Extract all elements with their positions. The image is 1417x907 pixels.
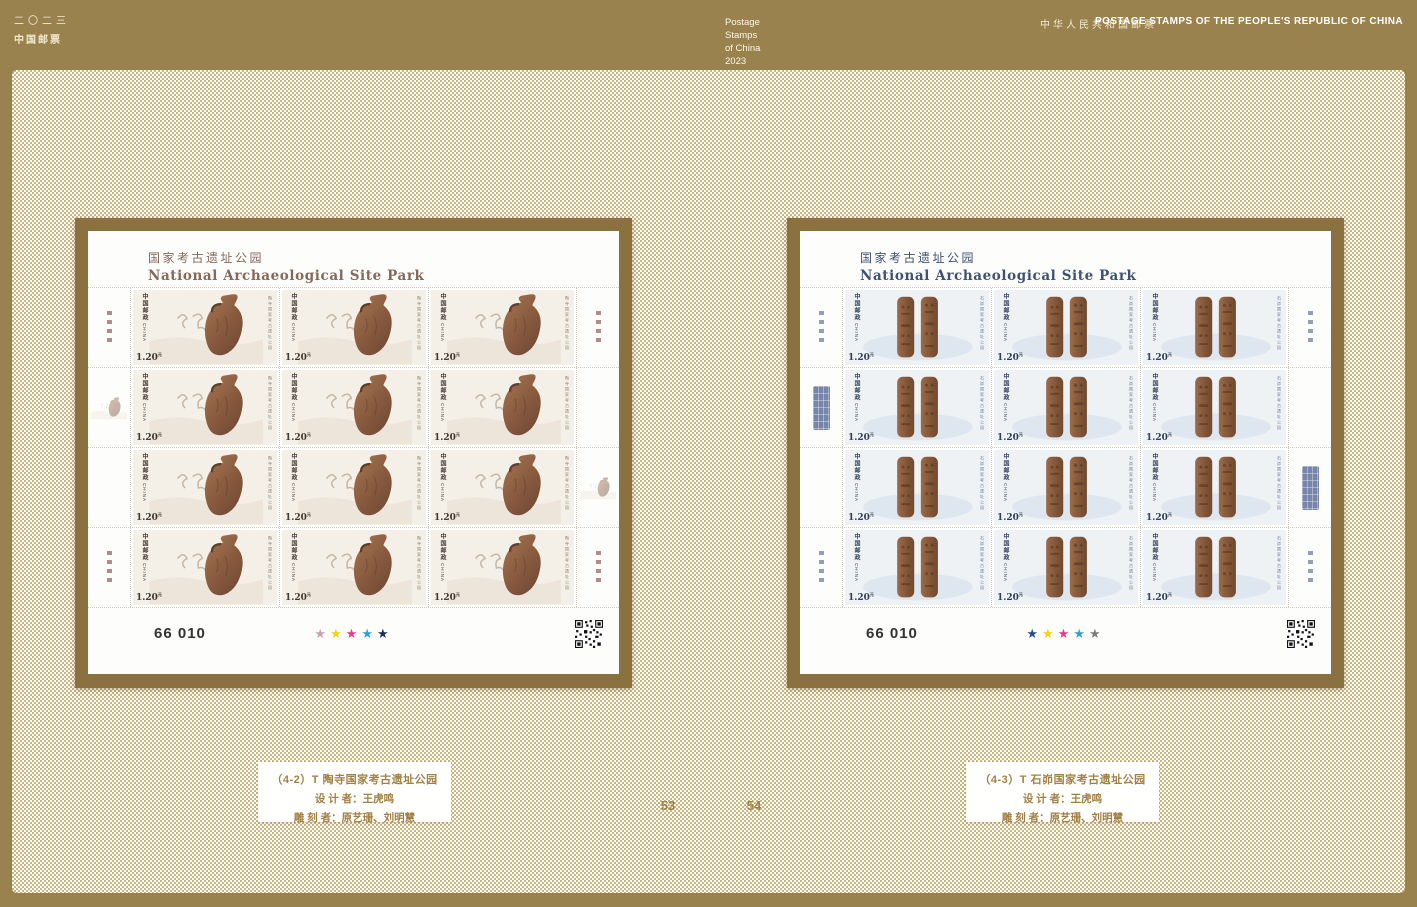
stamp-denomination: 1.20元 xyxy=(136,512,162,523)
sheet-title-cn: 国家考古遗址公园 xyxy=(148,249,619,266)
stamp-design: 中国邮政CHINA陶寺国家考古遗址公园1.20元 xyxy=(431,450,574,525)
sheet-title-en: National Archaeological Site Park xyxy=(860,268,1331,284)
stamp-artwork-icon xyxy=(859,372,977,444)
stamp-artwork-icon xyxy=(1008,372,1126,444)
stamp-row: 中国邮政CHINA陶寺国家考古遗址公园1.20元中国邮政CHINA陶寺国家考古遗… xyxy=(88,447,619,527)
stamp-row: 中国邮政CHINA陶寺国家考古遗址公园1.20元中国邮政CHINA陶寺国家考古遗… xyxy=(88,367,619,447)
stamp-post-label: 中国邮政CHINA xyxy=(1146,453,1162,502)
stamp-denomination: 1.20元 xyxy=(1146,592,1172,603)
caption-box-left: （4-2）T 陶寺国家考古遗址公园 设 计 者：王虎鸣 雕 刻 者：原艺珊、刘明… xyxy=(258,762,451,822)
stamp-artwork-icon xyxy=(296,452,414,524)
registration-star-icon: ★ xyxy=(1058,626,1074,641)
stamp-post-label: 中国邮政CHINA xyxy=(1146,373,1162,422)
stamp: 中国邮政CHINA陶寺国家考古遗址公园1.20元 xyxy=(130,448,279,527)
stamp-design: 中国邮政CHINA陶寺国家考古遗址公园1.20元 xyxy=(133,450,277,525)
stamp: 中国邮政CHINA陶寺国家考古遗址公园1.20元 xyxy=(130,288,279,367)
stamp-side-title: 陶寺国家考古遗址公园 xyxy=(564,456,570,511)
stamp-side-title: 陶寺国家考古遗址公园 xyxy=(564,376,570,431)
registration-star-icon: ★ xyxy=(346,626,362,641)
stamp-post-label: 中国邮政CHINA xyxy=(434,453,450,502)
margin-inscription-icon xyxy=(596,311,601,345)
sheet-title-en: National Archaeological Site Park xyxy=(148,268,619,284)
sheet-margin xyxy=(800,448,842,527)
stamp-denomination: 1.20元 xyxy=(136,432,162,443)
stamp-design: 中国邮政CHINA石峁国家考古遗址公园1.20元 xyxy=(994,450,1138,525)
stamp-artwork-icon xyxy=(859,532,977,604)
registration-star-icon: ★ xyxy=(1073,626,1089,641)
stamp-design: 中国邮政CHINA石峁国家考古遗址公园1.20元 xyxy=(845,370,989,445)
stamp-post-label: 中国邮政CHINA xyxy=(848,373,864,422)
stamp-denomination: 1.20元 xyxy=(136,352,162,363)
stamp: 中国邮政CHINA陶寺国家考古遗址公园1.20元 xyxy=(428,448,577,527)
margin-seal-icon xyxy=(1302,466,1319,510)
caption-box-right: （4-3）T 石峁国家考古遗址公园 设 计 者：王虎鸣 雕 刻 者：原艺珊、刘明… xyxy=(966,762,1159,822)
stamp-denomination: 1.20元 xyxy=(285,592,311,603)
stamp-design: 中国邮政CHINA石峁国家考古遗址公园1.20元 xyxy=(845,290,989,365)
margin-inscription-icon xyxy=(1308,311,1313,345)
stamp: 中国邮政CHINA石峁国家考古遗址公园1.20元 xyxy=(1140,368,1289,447)
stamp-post-label: 中国邮政CHINA xyxy=(848,453,864,502)
sheet-margin xyxy=(577,528,619,607)
caption-engraver: 雕 刻 者：原艺珊、刘明慧 xyxy=(966,810,1159,825)
stamp: 中国邮政CHINA石峁国家考古遗址公园1.20元 xyxy=(842,368,991,447)
stamp: 中国邮政CHINA石峁国家考古遗址公园1.20元 xyxy=(991,288,1140,367)
header-en-title: POSTAGE STAMPS OF THE PEOPLE'S REPUBLIC … xyxy=(1095,16,1403,27)
stamp-design: 中国邮政CHINA石峁国家考古遗址公园1.20元 xyxy=(994,290,1138,365)
sheet-bottom-strip: 66 010 ★★★★★ xyxy=(88,607,619,673)
stamp-artwork-icon xyxy=(147,452,265,524)
stamp-artwork-icon xyxy=(1008,292,1126,364)
stamp-denomination: 1.20元 xyxy=(997,352,1023,363)
stamp-artwork-icon xyxy=(1157,452,1275,524)
stamp-artwork-icon xyxy=(147,292,265,364)
stamp-row: 中国邮政CHINA石峁国家考古遗址公园1.20元中国邮政CHINA石峁国家考古遗… xyxy=(800,287,1331,367)
stamp-side-title: 陶寺国家考古遗址公园 xyxy=(267,296,273,351)
stamp-design: 中国邮政CHINA陶寺国家考古遗址公园1.20元 xyxy=(282,530,426,605)
stamp-sheet-frame-left: 国家考古遗址公园 National Archaeological Site Pa… xyxy=(75,218,632,688)
stamp-design: 中国邮政CHINA石峁国家考古遗址公园1.20元 xyxy=(994,370,1138,445)
stamp-design: 中国邮政CHINA陶寺国家考古遗址公园1.20元 xyxy=(282,290,426,365)
stamp-artwork-icon xyxy=(1008,532,1126,604)
sheet-margin xyxy=(88,448,130,527)
stamp: 中国邮政CHINA陶寺国家考古遗址公园1.20元 xyxy=(428,288,577,367)
stamp-side-title: 陶寺国家考古遗址公园 xyxy=(416,536,422,591)
stamp-side-title: 石峁国家考古遗址公园 xyxy=(979,456,985,511)
stamp-side-title: 石峁国家考古遗址公园 xyxy=(1276,536,1282,591)
stamp-denomination: 1.20元 xyxy=(1146,352,1172,363)
stamp: 中国邮政CHINA陶寺国家考古遗址公园1.20元 xyxy=(279,528,428,607)
stamp-post-label: 中国邮政CHINA xyxy=(434,293,450,342)
stamp-artwork-icon xyxy=(1008,452,1126,524)
registration-star-icon: ★ xyxy=(361,626,377,641)
stamp: 中国邮政CHINA陶寺国家考古遗址公园1.20元 xyxy=(428,528,577,607)
stamp-artwork-icon xyxy=(1157,292,1275,364)
stamp-side-title: 石峁国家考古遗址公园 xyxy=(1128,536,1134,591)
caption-title: （4-2）T 陶寺国家考古遗址公园 xyxy=(258,771,451,787)
stamp-post-label: 中国邮政CHINA xyxy=(434,373,450,422)
stamp-side-title: 陶寺国家考古遗址公园 xyxy=(267,456,273,511)
stamp: 中国邮政CHINA陶寺国家考古遗址公园1.20元 xyxy=(130,528,279,607)
stamp-design: 中国邮政CHINA石峁国家考古遗址公园1.20元 xyxy=(845,450,989,525)
margin-pottery-sketch-icon xyxy=(580,462,616,514)
stamp-post-label: 中国邮政CHINA xyxy=(848,533,864,582)
stamp-side-title: 陶寺国家考古遗址公园 xyxy=(267,376,273,431)
page-number-left: 53 xyxy=(655,798,681,813)
stamp-denomination: 1.20元 xyxy=(997,512,1023,523)
stamp: 中国邮政CHINA石峁国家考古遗址公园1.20元 xyxy=(1140,288,1289,367)
stamp-denomination: 1.20元 xyxy=(136,592,162,603)
stamp: 中国邮政CHINA石峁国家考古遗址公园1.20元 xyxy=(842,288,991,367)
stamp-post-label: 中国邮政CHINA xyxy=(285,533,301,582)
stamp-denomination: 1.20元 xyxy=(848,352,874,363)
header-center-line: Stamps xyxy=(725,29,760,42)
sheet-margin xyxy=(577,288,619,367)
stamp-post-label: 中国邮政CHINA xyxy=(136,293,152,342)
stamp-side-title: 石峁国家考古遗址公园 xyxy=(1276,456,1282,511)
stamp-design: 中国邮政CHINA石峁国家考古遗址公园1.20元 xyxy=(994,530,1138,605)
sheet-margin xyxy=(800,288,842,367)
stamp-row: 中国邮政CHINA陶寺国家考古遗址公园1.20元中国邮政CHINA陶寺国家考古遗… xyxy=(88,527,619,607)
album-page: 二〇二三 中国邮票 Postage Stamps of China 2023 中… xyxy=(0,0,1417,907)
stamp-denomination: 1.20元 xyxy=(434,352,460,363)
stamp-artwork-icon xyxy=(445,292,563,364)
sheet-margin xyxy=(577,368,619,447)
sheet-title-cn: 国家考古遗址公园 xyxy=(860,249,1331,266)
stamp-design: 中国邮政CHINA陶寺国家考古遗址公园1.20元 xyxy=(133,530,277,605)
stamp: 中国邮政CHINA石峁国家考古遗址公园1.20元 xyxy=(991,528,1140,607)
sheet-margin xyxy=(800,528,842,607)
stamp-denomination: 1.20元 xyxy=(848,432,874,443)
stamp: 中国邮政CHINA石峁国家考古遗址公园1.20元 xyxy=(1140,528,1289,607)
stamp-side-title: 陶寺国家考古遗址公园 xyxy=(564,536,570,591)
stamp: 中国邮政CHINA石峁国家考古遗址公园1.20元 xyxy=(842,448,991,527)
stamp-row: 中国邮政CHINA石峁国家考古遗址公园1.20元中国邮政CHINA石峁国家考古遗… xyxy=(800,527,1331,607)
sheet-bottom-strip: 66 010 ★★★★★ xyxy=(800,607,1331,673)
stamp-post-label: 中国邮政CHINA xyxy=(997,453,1013,502)
stamp-denomination: 1.20元 xyxy=(848,592,874,603)
page-number-right: 54 xyxy=(741,798,767,813)
header-center-block: Postage Stamps of China 2023 xyxy=(725,16,760,68)
stamp-post-label: 中国邮政CHINA xyxy=(1146,293,1162,342)
stamp-artwork-icon xyxy=(147,532,265,604)
stamp-denomination: 1.20元 xyxy=(285,512,311,523)
stamp-design: 中国邮政CHINA石峁国家考古遗址公园1.20元 xyxy=(1143,370,1286,445)
registration-star-icon: ★ xyxy=(1089,626,1105,641)
stamp-artwork-icon xyxy=(1157,372,1275,444)
caption-designer: 设 计 者：王虎鸣 xyxy=(966,791,1159,806)
stamp-post-label: 中国邮政CHINA xyxy=(434,533,450,582)
stamp-design: 中国邮政CHINA陶寺国家考古遗址公园1.20元 xyxy=(282,450,426,525)
stamp: 中国邮政CHINA石峁国家考古遗址公园1.20元 xyxy=(991,448,1140,527)
stamp-design: 中国邮政CHINA陶寺国家考古遗址公园1.20元 xyxy=(431,290,574,365)
margin-inscription-icon xyxy=(107,311,112,345)
stamp-denomination: 1.20元 xyxy=(285,432,311,443)
sheet-margin xyxy=(88,368,130,447)
stamp-denomination: 1.20元 xyxy=(997,592,1023,603)
sheet-margin xyxy=(88,528,130,607)
stamp-artwork-icon xyxy=(296,372,414,444)
stamp-design: 中国邮政CHINA陶寺国家考古遗址公园1.20元 xyxy=(282,370,426,445)
stamp-design: 中国邮政CHINA陶寺国家考古遗址公园1.20元 xyxy=(133,290,277,365)
caption-title: （4-3）T 石峁国家考古遗址公园 xyxy=(966,771,1159,787)
stamp-artwork-icon xyxy=(445,452,563,524)
stamp-post-label: 中国邮政CHINA xyxy=(997,373,1013,422)
stamp-denomination: 1.20元 xyxy=(997,432,1023,443)
sheet-margin xyxy=(577,448,619,527)
stamp-post-label: 中国邮政CHINA xyxy=(285,293,301,342)
stamp-artwork-icon xyxy=(859,292,977,364)
sheet-header: 国家考古遗址公园 National Archaeological Site Pa… xyxy=(88,231,619,287)
stamp-design: 中国邮政CHINA石峁国家考古遗址公园1.20元 xyxy=(845,530,989,605)
stamp: 中国邮政CHINA陶寺国家考古遗址公园1.20元 xyxy=(428,368,577,447)
stamp-denomination: 1.20元 xyxy=(434,512,460,523)
header-center-line: of China xyxy=(725,42,760,55)
stamp-side-title: 陶寺国家考古遗址公园 xyxy=(267,536,273,591)
qr-code-icon xyxy=(575,620,603,648)
sheet-margin xyxy=(1289,288,1331,367)
caption-engraver: 雕 刻 者：原艺珊、刘明慧 xyxy=(258,810,451,825)
sheet-header: 国家考古遗址公园 National Archaeological Site Pa… xyxy=(800,231,1331,287)
stamp-row: 中国邮政CHINA石峁国家考古遗址公园1.20元中国邮政CHINA石峁国家考古遗… xyxy=(800,367,1331,447)
qr-code-icon xyxy=(1287,620,1315,648)
stamp: 中国邮政CHINA陶寺国家考古遗址公园1.20元 xyxy=(279,368,428,447)
stamp: 中国邮政CHINA陶寺国家考古遗址公园1.20元 xyxy=(279,288,428,367)
stamp-side-title: 石峁国家考古遗址公园 xyxy=(979,296,985,351)
margin-inscription-icon xyxy=(819,551,824,585)
registration-star-icon: ★ xyxy=(330,626,346,641)
stamp-sheet-frame-right: 国家考古遗址公园 National Archaeological Site Pa… xyxy=(787,218,1344,688)
margin-inscription-icon xyxy=(107,551,112,585)
stamp-denomination: 1.20元 xyxy=(1146,512,1172,523)
stamp-design: 中国邮政CHINA石峁国家考古遗址公园1.20元 xyxy=(1143,530,1286,605)
stamp: 中国邮政CHINA石峁国家考古遗址公园1.20元 xyxy=(991,368,1140,447)
header-center-line: Postage xyxy=(725,16,760,29)
stamp-post-label: 中国邮政CHINA xyxy=(1146,533,1162,582)
stamp-post-label: 中国邮政CHINA xyxy=(136,533,152,582)
stamp-denomination: 1.20元 xyxy=(434,432,460,443)
stamp-side-title: 石峁国家考古遗址公园 xyxy=(1276,376,1282,431)
stamp-post-label: 中国邮政CHINA xyxy=(997,533,1013,582)
stamp-artwork-icon xyxy=(859,452,977,524)
registration-star-icon: ★ xyxy=(1042,626,1058,641)
stamp-artwork-icon xyxy=(1157,532,1275,604)
header-center-line: 2023 xyxy=(725,55,760,68)
sheet-margin xyxy=(88,288,130,367)
stamp-design: 中国邮政CHINA石峁国家考古遗址公园1.20元 xyxy=(1143,290,1286,365)
margin-inscription-icon xyxy=(819,311,824,345)
stamp-design: 中国邮政CHINA石峁国家考古遗址公园1.20元 xyxy=(1143,450,1286,525)
stamp: 中国邮政CHINA石峁国家考古遗址公园1.20元 xyxy=(1140,448,1289,527)
stamp-denomination: 1.20元 xyxy=(848,512,874,523)
stamp-post-label: 中国邮政CHINA xyxy=(997,293,1013,342)
stamp-post-label: 中国邮政CHINA xyxy=(136,373,152,422)
sheet-margin xyxy=(1289,368,1331,447)
registration-star-icon: ★ xyxy=(314,626,330,641)
stamp-side-title: 石峁国家考古遗址公园 xyxy=(1128,296,1134,351)
stamp-side-title: 石峁国家考古遗址公园 xyxy=(1128,456,1134,511)
stamp-denomination: 1.20元 xyxy=(1146,432,1172,443)
stamp-side-title: 陶寺国家考古遗址公园 xyxy=(416,456,422,511)
sheet-margin xyxy=(1289,448,1331,527)
stamp-side-title: 陶寺国家考古遗址公园 xyxy=(416,296,422,351)
stamp-design: 中国邮政CHINA陶寺国家考古遗址公园1.20元 xyxy=(133,370,277,445)
stamp-side-title: 石峁国家考古遗址公园 xyxy=(1128,376,1134,431)
stamp-side-title: 石峁国家考古遗址公园 xyxy=(979,536,985,591)
stamp-artwork-icon xyxy=(445,372,563,444)
stamp-post-label: 中国邮政CHINA xyxy=(285,373,301,422)
stamp-artwork-icon xyxy=(147,372,265,444)
margin-pottery-sketch-icon xyxy=(91,382,127,434)
stamp-side-title: 陶寺国家考古遗址公园 xyxy=(416,376,422,431)
stamp-artwork-icon xyxy=(296,292,414,364)
color-registration-stars: ★★★★★ xyxy=(88,626,619,642)
stamp: 中国邮政CHINA陶寺国家考古遗址公园1.20元 xyxy=(130,368,279,447)
stamp-side-title: 石峁国家考古遗址公园 xyxy=(1276,296,1282,351)
stamp-artwork-icon xyxy=(296,532,414,604)
stamp-sheet: 国家考古遗址公园 National Archaeological Site Pa… xyxy=(800,231,1331,674)
color-registration-stars: ★★★★★ xyxy=(800,626,1331,642)
stamp: 中国邮政CHINA石峁国家考古遗址公园1.20元 xyxy=(842,528,991,607)
stamp-side-title: 陶寺国家考古遗址公园 xyxy=(564,296,570,351)
stamp-design: 中国邮政CHINA陶寺国家考古遗址公园1.20元 xyxy=(431,530,574,605)
stamp-post-label: 中国邮政CHINA xyxy=(285,453,301,502)
sheet-margin xyxy=(800,368,842,447)
margin-inscription-icon xyxy=(1308,551,1313,585)
stamp-row: 中国邮政CHINA石峁国家考古遗址公园1.20元中国邮政CHINA石峁国家考古遗… xyxy=(800,447,1331,527)
stamp-design: 中国邮政CHINA陶寺国家考古遗址公园1.20元 xyxy=(431,370,574,445)
stamp-denomination: 1.20元 xyxy=(434,592,460,603)
header-left-block: 二〇二三 中国邮票 xyxy=(14,12,70,46)
stamp-post-label: 中国邮政CHINA xyxy=(848,293,864,342)
stamp-grid: 中国邮政CHINA陶寺国家考古遗址公园1.20元中国邮政CHINA陶寺国家考古遗… xyxy=(88,287,619,607)
stamp-row: 中国邮政CHINA陶寺国家考古遗址公园1.20元中国邮政CHINA陶寺国家考古遗… xyxy=(88,287,619,367)
registration-star-icon: ★ xyxy=(377,626,393,641)
registration-star-icon: ★ xyxy=(1026,626,1042,641)
margin-seal-icon xyxy=(813,386,830,430)
stamp-side-title: 石峁国家考古遗址公园 xyxy=(979,376,985,431)
brand-label: 中国邮票 xyxy=(14,31,70,46)
caption-designer: 设 计 者：王虎鸣 xyxy=(258,791,451,806)
stamp-sheet: 国家考古遗址公园 National Archaeological Site Pa… xyxy=(88,231,619,674)
stamp-artwork-icon xyxy=(445,532,563,604)
stamp: 中国邮政CHINA陶寺国家考古遗址公园1.20元 xyxy=(279,448,428,527)
stamp-post-label: 中国邮政CHINA xyxy=(136,453,152,502)
stamp-grid: 中国邮政CHINA石峁国家考古遗址公园1.20元中国邮政CHINA石峁国家考古遗… xyxy=(800,287,1331,607)
year-label: 二〇二三 xyxy=(14,12,70,27)
stamp-denomination: 1.20元 xyxy=(285,352,311,363)
margin-inscription-icon xyxy=(596,551,601,585)
sheet-margin xyxy=(1289,528,1331,607)
